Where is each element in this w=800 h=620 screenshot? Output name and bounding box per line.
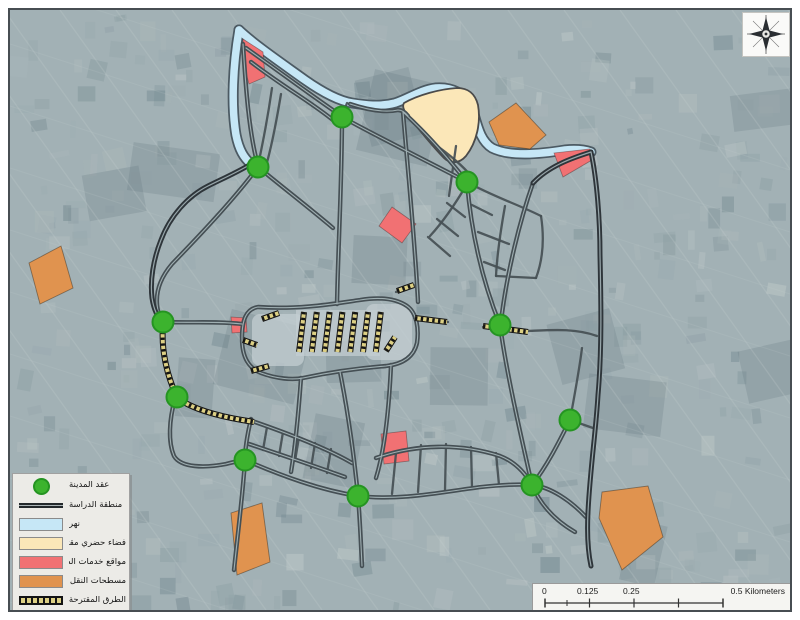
aerial-block — [518, 51, 529, 60]
aerial-block — [201, 94, 209, 104]
road-segment — [246, 48, 340, 115]
aerial-block — [286, 554, 303, 571]
aerial-block — [647, 188, 659, 208]
aerial-block — [29, 459, 38, 467]
aerial-block — [280, 265, 292, 277]
road-segment — [501, 183, 533, 321]
aerial-block — [41, 186, 48, 195]
aerial-block — [70, 121, 76, 138]
road-segment — [428, 237, 450, 256]
aerial-patch — [546, 308, 625, 385]
aerial-block — [433, 588, 453, 610]
aerial-block — [250, 214, 261, 226]
scalebar-label: 0.25 — [623, 586, 640, 596]
aerial-block — [417, 307, 430, 314]
city-node-marker — [522, 475, 543, 496]
city-node-marker — [332, 107, 353, 128]
aerial-block — [722, 197, 734, 213]
aerial-block — [32, 345, 52, 355]
aerial-block — [745, 457, 761, 466]
aerial-block — [154, 422, 170, 433]
aerial-block — [66, 201, 86, 208]
aerial-block — [121, 370, 137, 388]
legend-label: الطرق المقترحة — [69, 596, 126, 605]
aerial-block — [392, 519, 413, 540]
hatched-line-icon — [18, 596, 64, 605]
road-segment — [445, 444, 446, 490]
aerial-block — [249, 83, 263, 104]
legend-item-emergency: مواقع خدمات الطوارئ — [13, 554, 129, 572]
aerial-block — [119, 302, 134, 314]
map-frame: عقد المدينة منطقة الدراسة نهر فضاء حضري … — [8, 8, 792, 612]
scalebar-label: 0.125 — [577, 586, 598, 596]
aerial-block — [225, 598, 245, 610]
city-node-marker — [153, 312, 174, 333]
aerial-block — [478, 547, 486, 555]
aerial-block — [324, 285, 335, 297]
city-node-marker — [490, 315, 511, 336]
aerial-block — [717, 229, 731, 245]
legend-label: عقد المدينة — [69, 481, 126, 490]
legend-item-urban-space: فضاء حضري مقترح — [13, 535, 129, 553]
aerial-block — [686, 333, 707, 344]
aerial-block — [673, 213, 690, 220]
road-segment — [418, 445, 421, 492]
city-node-marker — [457, 172, 478, 193]
aerial-block — [175, 597, 190, 610]
aerial-block — [367, 389, 374, 408]
aerial-block — [653, 232, 676, 244]
aerial-patch — [730, 85, 790, 132]
aerial-block — [109, 41, 127, 59]
aerial-block — [124, 345, 130, 355]
legend-item-study-area: منطقة الدراسة — [13, 496, 129, 514]
aerial-block — [580, 128, 599, 146]
aerial-block — [773, 523, 790, 536]
legend-item-proposed-roads: الطرق المقترحة — [13, 592, 129, 610]
aerial-block — [436, 189, 447, 198]
public-transport-area — [29, 246, 73, 304]
aerial-block — [718, 173, 738, 189]
aerial-block — [541, 191, 557, 202]
city-node-marker — [248, 157, 269, 178]
road-segment — [496, 276, 536, 278]
legend-label: مواقع خدمات الطوارئ — [69, 558, 126, 567]
aerial-block — [416, 377, 428, 385]
aerial-block — [580, 210, 590, 224]
aerial-block — [461, 322, 482, 330]
aerial-block — [181, 308, 189, 318]
aerial-block — [256, 105, 273, 121]
aerial-block — [78, 86, 96, 101]
aerial-block — [338, 503, 352, 518]
aerial-block — [161, 34, 167, 52]
aerial-block — [688, 230, 695, 249]
aerial-block — [624, 191, 634, 210]
aerial-block — [297, 105, 312, 117]
aerial-block — [571, 545, 587, 555]
aerial-block — [132, 595, 151, 610]
aerial-block — [581, 91, 591, 98]
aerial-patch — [430, 347, 488, 405]
aerial-block — [135, 55, 145, 65]
aerial-block — [274, 596, 280, 609]
aerial-block — [372, 504, 394, 518]
aerial-block — [298, 160, 304, 178]
transport-swatch-icon — [18, 575, 64, 588]
aerial-block — [481, 420, 496, 443]
aerial-block — [424, 453, 438, 466]
city-node-marker — [348, 486, 369, 507]
city-node-marker — [167, 387, 188, 408]
legend-item-city-node: عقد المدينة — [13, 477, 129, 495]
compass-rose-icon — [743, 13, 789, 56]
aerial-block — [735, 549, 756, 560]
aerial-block — [540, 557, 559, 573]
urban-space-swatch-icon — [18, 537, 64, 550]
river-swatch-icon — [18, 518, 64, 531]
aerial-block — [317, 258, 333, 270]
aerial-block — [326, 33, 337, 46]
aerial-block — [78, 466, 87, 473]
aerial-block — [545, 545, 552, 554]
road-segment — [471, 447, 472, 488]
aerial-block — [308, 385, 325, 405]
aerial-block — [27, 405, 42, 416]
aerial-block — [493, 103, 498, 109]
aerial-block — [738, 532, 749, 543]
city-node-marker — [560, 410, 581, 431]
aerial-block — [275, 213, 290, 232]
emergency-swatch-icon — [18, 556, 64, 569]
aerial-block — [141, 225, 153, 239]
aerial-block — [609, 288, 616, 293]
aerial-block — [68, 208, 78, 224]
road-segment — [258, 167, 333, 228]
aerial-block — [486, 349, 504, 363]
scalebar-label: 0 — [542, 586, 547, 596]
aerial-block — [219, 181, 237, 190]
aerial-block — [277, 287, 287, 294]
aerial-block — [751, 408, 761, 424]
scalebar-bar — [533, 597, 791, 608]
aerial-block — [630, 82, 636, 89]
aerial-block — [769, 203, 786, 220]
aerial-block — [360, 22, 375, 34]
north-arrow-box — [742, 12, 790, 57]
aerial-block — [510, 77, 524, 90]
aerial-block — [558, 266, 577, 284]
aerial-block — [146, 538, 160, 555]
aerial-block — [695, 295, 704, 302]
aerial-block — [165, 92, 172, 103]
aerial-block — [108, 362, 116, 370]
aerial-block — [634, 244, 642, 260]
aerial-block — [574, 229, 593, 240]
aerial-block — [259, 475, 272, 486]
legend-item-river: نهر — [13, 515, 129, 533]
aerial-block — [122, 358, 136, 368]
aerial-block — [440, 276, 458, 282]
double-line-icon — [18, 503, 64, 508]
aerial-block — [654, 252, 660, 260]
aerial-block — [270, 404, 285, 422]
aerial-block — [582, 20, 592, 27]
aerial-block — [658, 259, 676, 280]
legend-label: فضاء حضري مقترح — [69, 539, 126, 548]
aerial-block — [159, 50, 175, 61]
aerial-block — [281, 515, 302, 524]
aerial-block — [175, 561, 181, 583]
aerial-block — [186, 70, 192, 82]
aerial-block — [104, 26, 114, 33]
aerial-block — [515, 533, 526, 541]
scalebar: 0 0.125 0.25 0.5 Kilometers — [532, 583, 790, 610]
aerial-block — [720, 407, 727, 416]
aerial-block — [696, 279, 713, 293]
aerial-block — [35, 99, 50, 109]
aerial-block — [311, 30, 321, 42]
aerial-block — [759, 177, 773, 191]
aerial-block — [176, 75, 187, 81]
legend-label: منطقة الدراسة — [69, 501, 126, 510]
aerial-block — [635, 77, 653, 93]
city-node-marker — [235, 450, 256, 471]
aerial-block — [241, 257, 253, 275]
aerial-block — [632, 448, 648, 466]
aerial-block — [344, 534, 358, 551]
aerial-block — [623, 335, 635, 355]
aerial-block — [688, 560, 701, 572]
aerial-block — [30, 119, 47, 132]
aerial-block — [447, 21, 461, 40]
aerial-block — [170, 542, 187, 563]
aerial-block — [204, 489, 224, 500]
aerial-block — [473, 455, 495, 471]
aerial-block — [27, 438, 37, 449]
green-circle-icon — [18, 478, 64, 495]
aerial-block — [495, 77, 506, 94]
aerial-block — [282, 590, 296, 606]
aerial-block — [365, 549, 385, 562]
aerial-block — [699, 133, 720, 152]
aerial-block — [627, 128, 633, 135]
legend-panel: عقد المدينة منطقة الدراسة نهر فضاء حضري … — [12, 473, 130, 612]
aerial-block — [56, 329, 71, 346]
legend-item-transport: مسطحات النقل العام — [13, 573, 129, 591]
aerial-block — [131, 563, 137, 578]
road-segment — [472, 205, 492, 215]
aerial-block — [532, 543, 543, 553]
aerial-block — [147, 91, 165, 102]
legend-label: نهر — [69, 520, 126, 529]
aerial-block — [767, 249, 776, 260]
aerial-block — [615, 282, 626, 300]
legend-label: مسطحات النقل العام — [69, 577, 126, 586]
aerial-patch — [351, 235, 407, 285]
aerial-block — [17, 368, 34, 391]
aerial-block — [713, 490, 732, 509]
aerial-block — [506, 430, 512, 449]
aerial-block — [713, 35, 733, 50]
aerial-block — [561, 32, 573, 42]
aerial-block — [533, 104, 548, 116]
aerial-block — [535, 92, 542, 106]
aerial-block — [626, 89, 632, 96]
scalebar-end-label: 0.5 Kilometers — [731, 586, 785, 596]
aerial-block — [175, 53, 192, 70]
aerial-block — [85, 22, 95, 39]
aerial-block — [696, 531, 717, 553]
aerial-block — [757, 242, 766, 262]
aerial-block — [59, 428, 69, 449]
road-segment — [536, 216, 543, 278]
aerial-block — [10, 56, 29, 78]
